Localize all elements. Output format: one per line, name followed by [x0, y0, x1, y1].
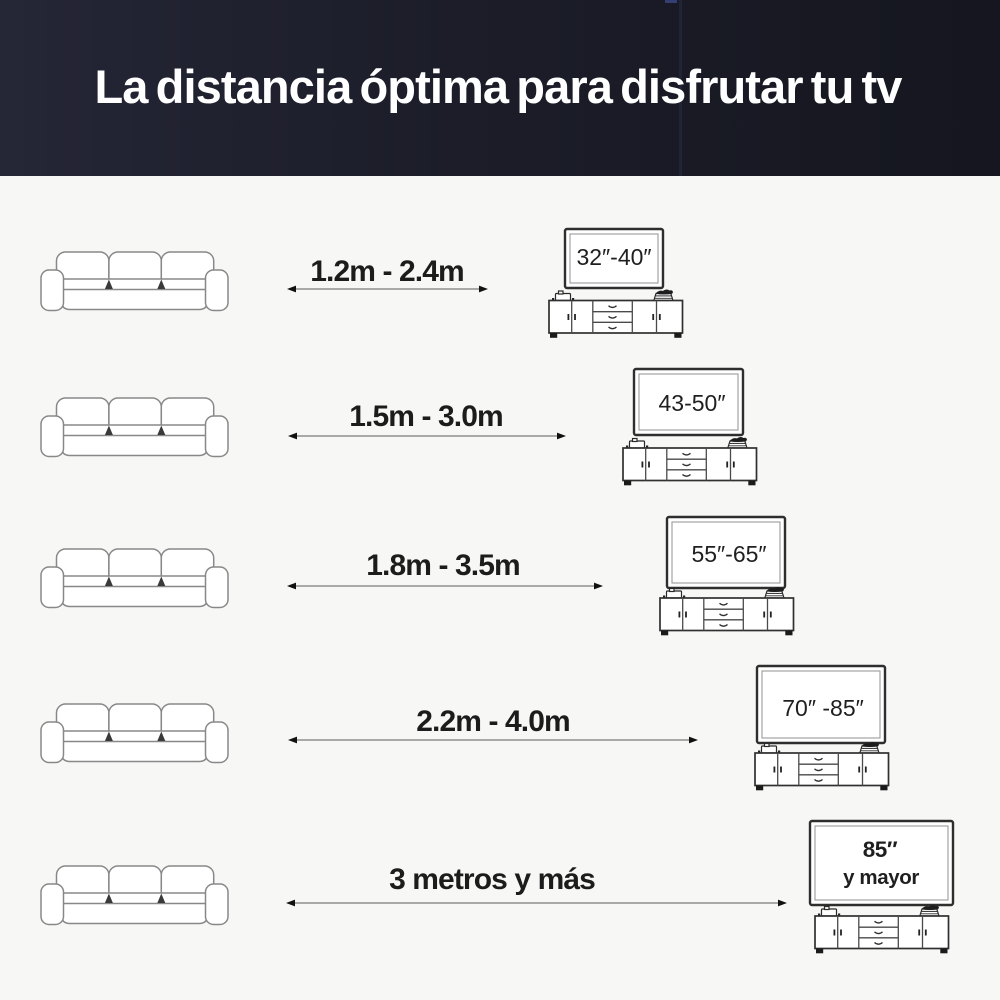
svg-text:La distancia óptima para disfr: La distancia óptima para disfrutar tu tv	[94, 60, 902, 113]
svg-text:70″ -85″: 70″ -85″	[782, 695, 864, 721]
svg-text:2.2m - 4.0m: 2.2m - 4.0m	[416, 705, 570, 738]
svg-text:3 metros y más: 3 metros y más	[389, 863, 595, 896]
svg-text:y mayor: y mayor	[843, 866, 919, 889]
svg-text:1.2m - 2.4m: 1.2m - 2.4m	[310, 255, 464, 288]
svg-text:55″-65″: 55″-65″	[691, 541, 766, 567]
svg-text:1.5m - 3.0m: 1.5m - 3.0m	[349, 400, 503, 433]
svg-text:1.8m - 3.5m: 1.8m - 3.5m	[366, 549, 520, 582]
svg-text:85″: 85″	[863, 837, 898, 862]
svg-text:32″-40″: 32″-40″	[576, 244, 651, 270]
svg-text:43-50″: 43-50″	[659, 390, 726, 416]
